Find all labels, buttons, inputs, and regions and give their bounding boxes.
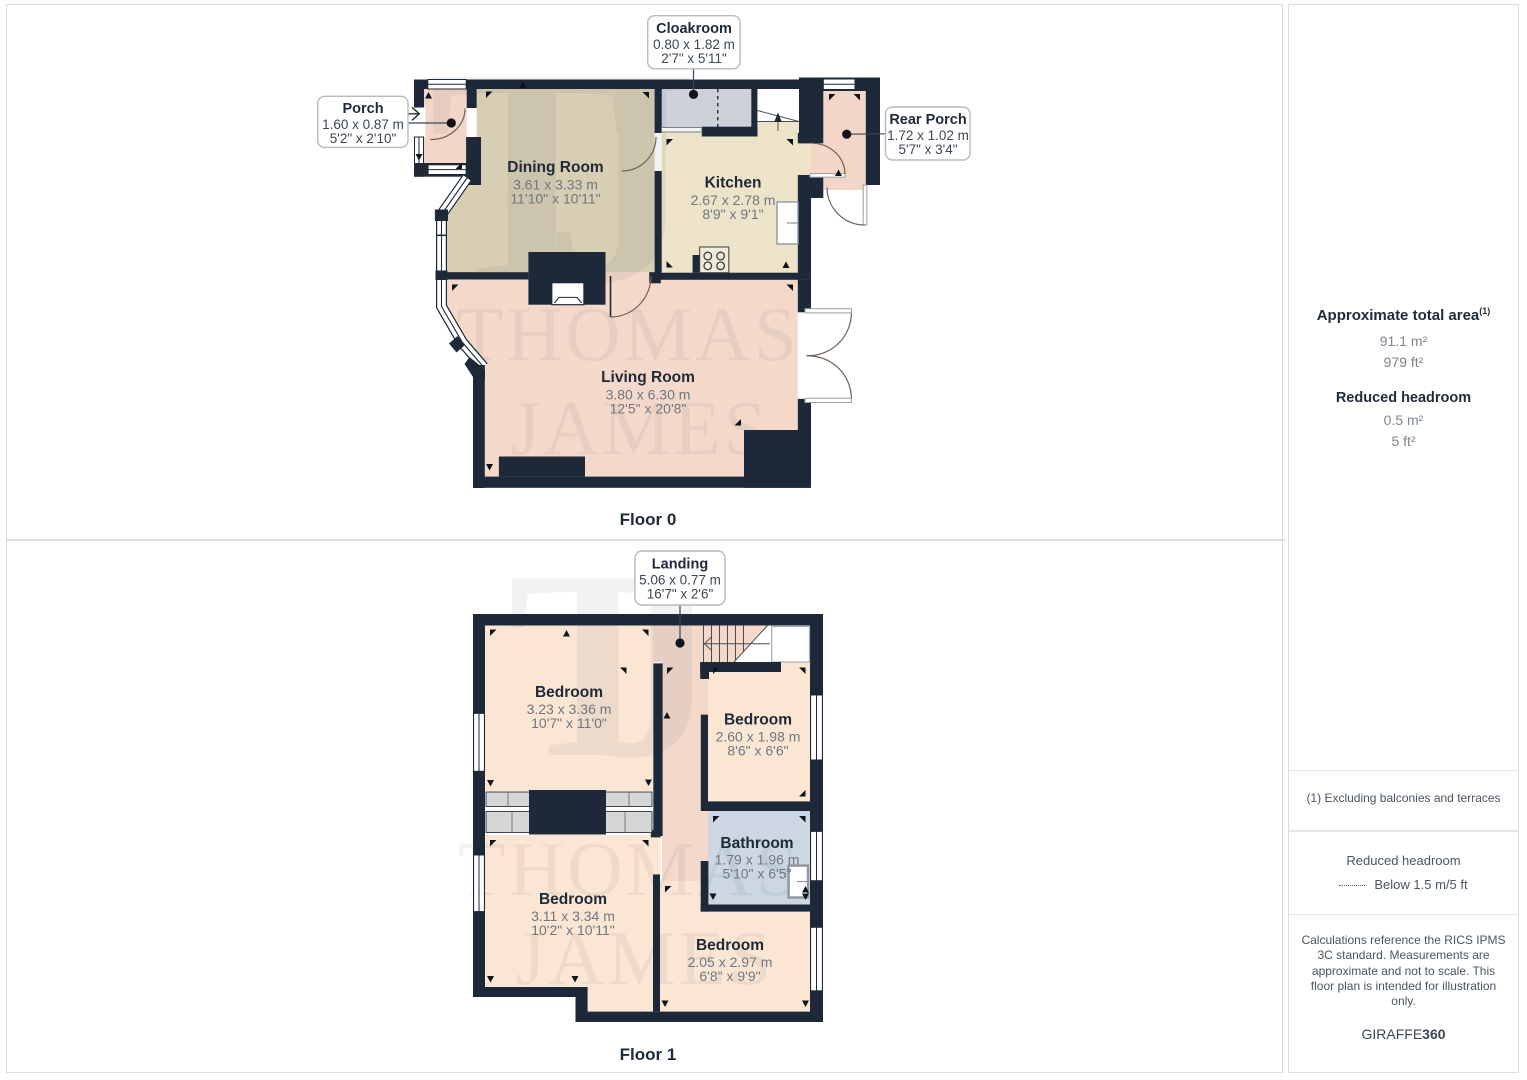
- svg-text:5.06 x 0.77 m: 5.06 x 0.77 m: [639, 573, 721, 588]
- svg-text:Living Room: Living Room: [601, 369, 695, 386]
- svg-text:Kitchen: Kitchen: [705, 175, 762, 192]
- svg-text:10'2" x 10'11": 10'2" x 10'11": [531, 922, 615, 938]
- svg-text:Rear Porch: Rear Porch: [889, 112, 966, 128]
- svg-text:5'2" x 2'10": 5'2" x 2'10": [330, 131, 397, 146]
- svg-text:Porch: Porch: [342, 101, 383, 117]
- svg-text:Dining Room: Dining Room: [507, 159, 603, 176]
- svg-text:0.80 x 1.82 m: 0.80 x 1.82 m: [653, 37, 735, 52]
- svg-text:8'6" x 6'6": 8'6" x 6'6": [727, 743, 788, 759]
- svg-text:Bathroom: Bathroom: [720, 835, 793, 852]
- svg-text:11'10" x 10'11": 11'10" x 10'11": [510, 191, 600, 207]
- svg-text:Landing: Landing: [652, 557, 708, 573]
- svg-text:5'10" x 6'5": 5'10" x 6'5": [723, 866, 792, 882]
- svg-text:10'7" x 11'0": 10'7" x 11'0": [531, 715, 607, 731]
- svg-text:8'9" x 9'1": 8'9" x 9'1": [702, 206, 763, 222]
- svg-text:Bedroom: Bedroom: [724, 712, 792, 729]
- svg-text:Floor 1: Floor 1: [620, 1045, 677, 1064]
- svg-text:Cloakroom: Cloakroom: [656, 21, 732, 37]
- svg-text:6'8" x 9'9": 6'8" x 9'9": [699, 968, 760, 984]
- svg-text:1.72 x 1.02 m: 1.72 x 1.02 m: [887, 128, 969, 143]
- svg-text:1.60 x 0.87 m: 1.60 x 0.87 m: [322, 117, 404, 132]
- svg-text:Bedroom: Bedroom: [539, 891, 607, 908]
- svg-text:5'7" x 3'4": 5'7" x 3'4": [898, 142, 957, 157]
- svg-text:12'5" x 20'8": 12'5" x 20'8": [610, 401, 687, 417]
- svg-text:2'7" x 5'11": 2'7" x 5'11": [661, 51, 727, 66]
- svg-text:Bedroom: Bedroom: [696, 937, 764, 954]
- svg-text:16'7" x 2'6": 16'7" x 2'6": [647, 587, 714, 602]
- svg-text:Bedroom: Bedroom: [535, 684, 603, 701]
- svg-text:THOMAS: THOMAS: [456, 291, 799, 377]
